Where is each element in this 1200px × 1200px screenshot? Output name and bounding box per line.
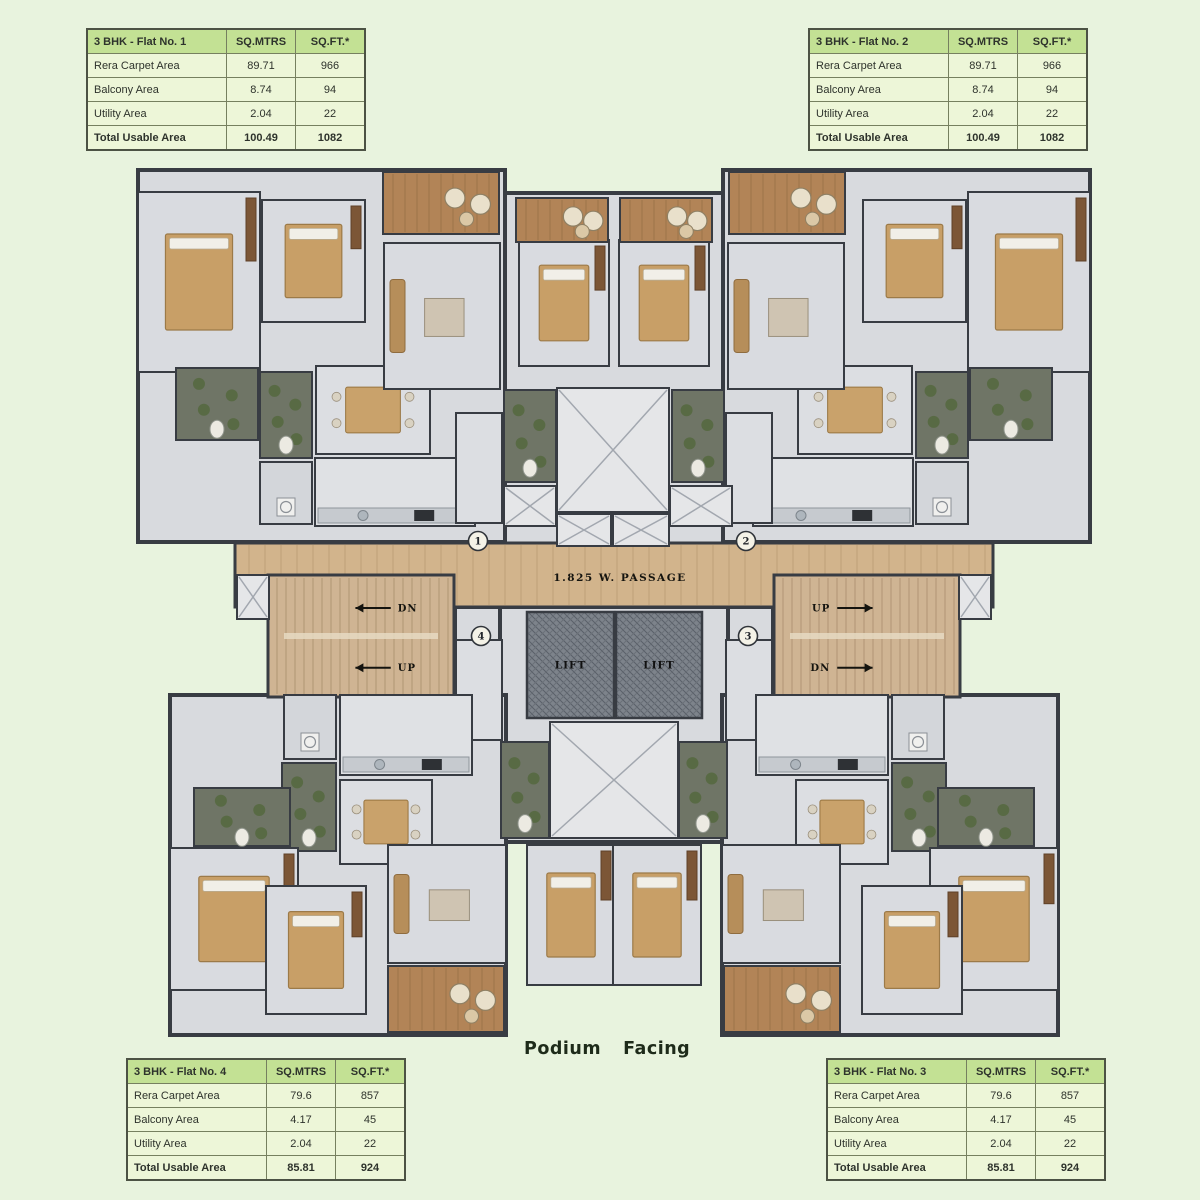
area-row-value: 857 xyxy=(1036,1084,1106,1108)
lift-2: LIFT xyxy=(616,612,702,718)
area-row-value: 89.71 xyxy=(949,54,1018,78)
area-row-label: Rera Carpet Area xyxy=(809,54,949,78)
room-duct-passage-end xyxy=(237,575,269,619)
area-col-header: SQ.FT.* xyxy=(336,1059,406,1084)
facing-word: Facing xyxy=(623,1039,690,1059)
area-row-value: 2.04 xyxy=(227,102,296,126)
plan-text: 4 xyxy=(478,632,485,643)
plan-text: LIFT xyxy=(643,660,675,672)
area-row-label: Total Usable Area xyxy=(827,1156,967,1181)
room-balcony-1b-right: BALCONY3.05 X 1.279'10" X 4'2" xyxy=(620,0,712,242)
stair-direction-label: UP xyxy=(812,603,830,614)
area-row: Utility Area2.0422 xyxy=(127,1132,405,1156)
plan-text: 1 xyxy=(475,537,482,548)
plan-text: 3 xyxy=(745,632,752,643)
area-total-row: Total Usable Area100.491082 xyxy=(809,126,1087,151)
area-row-label: Utility Area xyxy=(127,1132,267,1156)
area-table-title: 3 BHK - Flat No. 1 xyxy=(87,29,227,54)
core-marker-1: 1 xyxy=(469,532,488,551)
area-row-label: Balcony Area xyxy=(809,78,949,102)
area-row-value: 45 xyxy=(336,1108,406,1132)
area-col-header: SQ.FT.* xyxy=(1018,29,1088,54)
area-row: Rera Carpet Area89.71966 xyxy=(87,54,365,78)
staircase-right: UPDN xyxy=(774,575,960,697)
area-row-value: 45 xyxy=(1036,1108,1106,1132)
plan-text: 10'2" X 11'4" xyxy=(630,0,684,2)
area-row-value: 22 xyxy=(296,102,366,126)
area-col-header: SQ.FT.* xyxy=(1036,1059,1106,1084)
plan-text: LIFT xyxy=(555,660,587,672)
area-row-value: 79.6 xyxy=(267,1084,336,1108)
core-marker-2: 2 xyxy=(737,532,756,551)
room-m-bedroom-1b: M. BEDROOM3.10 X 3.9610'2" X 13'0" xyxy=(519,0,609,366)
area-row-value: 79.6 xyxy=(967,1084,1036,1108)
area-row-value: 22 xyxy=(336,1132,406,1156)
area-row-value: 924 xyxy=(336,1156,406,1181)
area-row-label: Rera Carpet Area xyxy=(827,1084,967,1108)
floor-plan-page: 1.825 W. PASSAGEDNUPUPDNM. BEDROOM3.55 X… xyxy=(0,0,1200,1200)
area-row-label: Utility Area xyxy=(809,102,949,126)
area-row: Rera Carpet Area79.6857 xyxy=(127,1084,405,1108)
area-row-value: 1082 xyxy=(1018,126,1088,151)
area-total-row: Total Usable Area85.81924 xyxy=(127,1156,405,1181)
area-row-label: Rera Carpet Area xyxy=(87,54,227,78)
room-duct-passage-end-right xyxy=(959,575,991,619)
area-row-value: 1082 xyxy=(296,126,366,151)
area-row: Balcony Area4.1745 xyxy=(127,1108,405,1132)
area-row-value: 22 xyxy=(1036,1132,1106,1156)
area-row-value: 100.49 xyxy=(949,126,1018,151)
area-row: Utility Area2.0422 xyxy=(827,1132,1105,1156)
area-table-title: 3 BHK - Flat No. 2 xyxy=(809,29,949,54)
plan-text: PASSAGE xyxy=(857,0,895,2)
floor-plan: 1.825 W. PASSAGEDNUPUPDNM. BEDROOM3.55 X… xyxy=(0,0,1200,1200)
core-marker-4: 4 xyxy=(472,627,491,646)
area-row-label: Utility Area xyxy=(87,102,227,126)
area-row-value: 22 xyxy=(1018,102,1088,126)
area-row: Balcony Area8.7494 xyxy=(809,78,1087,102)
area-col-header: SQ.MTRS xyxy=(949,29,1018,54)
area-row-label: Total Usable Area xyxy=(127,1156,267,1181)
room-passage-label-4-right: 3'0" WIDEPASSAGE xyxy=(852,0,901,2)
area-row-value: 966 xyxy=(1018,54,1088,78)
area-col-header: SQ.MTRS xyxy=(967,1059,1036,1084)
lift-1: LIFT xyxy=(527,612,614,718)
core-marker-3: 3 xyxy=(739,627,758,646)
stair-direction-label: DN xyxy=(398,603,418,614)
room-passage-label-4: 3'0" WIDEPASSAGE xyxy=(328,0,377,2)
area-row-value: 966 xyxy=(296,54,366,78)
area-col-header: SQ.MTRS xyxy=(267,1059,336,1084)
area-row-value: 85.81 xyxy=(967,1156,1036,1181)
area-row-label: Total Usable Area xyxy=(87,126,227,151)
staircase-left: DNUP xyxy=(268,575,454,697)
area-table-grid-flat-3: 3 BHK - Flat No. 3SQ.MTRSSQ.FT.*Rera Car… xyxy=(826,1058,1106,1181)
plan-text: 10'0" X 13'0" xyxy=(207,0,261,2)
passage-width-label: 1.825 W. PASSAGE xyxy=(553,572,686,584)
area-row-label: Total Usable Area xyxy=(809,126,949,151)
plan-text: 10'0" X 13'0" xyxy=(967,0,1021,2)
area-total-row: Total Usable Area85.81924 xyxy=(827,1156,1105,1181)
area-col-header: SQ.FT.* xyxy=(296,29,366,54)
area-row-value: 4.17 xyxy=(967,1108,1036,1132)
area-row-value: 89.71 xyxy=(227,54,296,78)
area-row-value: 4.17 xyxy=(267,1108,336,1132)
area-table-flat-2: 3 BHK - Flat No. 2SQ.MTRSSQ.FT.*Rera Car… xyxy=(808,28,1088,151)
area-row-label: Balcony Area xyxy=(87,78,227,102)
area-col-header: SQ.MTRS xyxy=(227,29,296,54)
area-row: Balcony Area8.7494 xyxy=(87,78,365,102)
area-table-grid-flat-4: 3 BHK - Flat No. 4SQ.MTRSSQ.FT.*Rera Car… xyxy=(126,1058,406,1181)
floor-plan-svg: 1.825 W. PASSAGEDNUPUPDNM. BEDROOM3.55 X… xyxy=(0,0,1200,1200)
area-total-row: Total Usable Area100.491082 xyxy=(87,126,365,151)
area-table-flat-4: 3 BHK - Flat No. 4SQ.MTRSSQ.FT.*Rera Car… xyxy=(126,1058,406,1181)
area-table-flat-3: 3 BHK - Flat No. 3SQ.MTRSSQ.FT.*Rera Car… xyxy=(826,1058,1106,1181)
room-m-bedroom-1b-right: M. BEDROOM3.10 X 3.9610'2" X 13'0" xyxy=(619,0,709,366)
stair-direction-label: UP xyxy=(398,663,416,674)
area-row-label: Balcony Area xyxy=(127,1108,267,1132)
plan-text: 2 xyxy=(743,537,750,548)
area-row: Balcony Area4.1745 xyxy=(827,1108,1105,1132)
area-row-value: 100.49 xyxy=(227,126,296,151)
area-row-value: 2.04 xyxy=(967,1132,1036,1156)
room-balcony-1: BALCONY3.29 X 1.1611'1" X 3'9" xyxy=(383,0,499,234)
plan-text: 10'2" X 4'0" xyxy=(422,0,471,2)
area-row: Rera Carpet Area89.71966 xyxy=(809,54,1087,78)
plan-text: 10'2" X 4'5" xyxy=(758,0,807,2)
area-row-value: 94 xyxy=(296,78,366,102)
plan-text: 10'2" X 11'4" xyxy=(544,0,598,2)
room-balcony-1b: BALCONY3.05 X 1.279'10" X 4'2" xyxy=(516,0,608,242)
area-row-value: 94 xyxy=(1018,78,1088,102)
area-row-label: Balcony Area xyxy=(827,1108,967,1132)
area-row-value: 924 xyxy=(1036,1156,1106,1181)
area-table-title: 3 BHK - Flat No. 4 xyxy=(127,1059,267,1084)
area-row-label: Rera Carpet Area xyxy=(127,1084,267,1108)
area-row-value: 2.04 xyxy=(267,1132,336,1156)
area-table-flat-1: 3 BHK - Flat No. 1SQ.MTRSSQ.FT.*Rera Car… xyxy=(86,28,366,151)
plan-text: PASSAGE xyxy=(333,0,371,2)
podium-word: Podium xyxy=(524,1039,601,1059)
area-row-value: 8.74 xyxy=(227,78,296,102)
area-table-grid-flat-1: 3 BHK - Flat No. 1SQ.MTRSSQ.FT.*Rera Car… xyxy=(86,28,366,151)
area-row-value: 2.04 xyxy=(949,102,1018,126)
area-table-title: 3 BHK - Flat No. 3 xyxy=(827,1059,967,1084)
stair-direction-label: DN xyxy=(810,663,830,674)
area-row-label: Utility Area xyxy=(827,1132,967,1156)
area-row: Utility Area2.0422 xyxy=(87,102,365,126)
area-row-value: 8.74 xyxy=(949,78,1018,102)
area-row-value: 857 xyxy=(336,1084,406,1108)
area-row: Utility Area2.0422 xyxy=(809,102,1087,126)
area-table-grid-flat-2: 3 BHK - Flat No. 2SQ.MTRSSQ.FT.*Rera Car… xyxy=(808,28,1088,151)
podium-facing-label: Podium Facing xyxy=(524,1039,690,1059)
area-row: Rera Carpet Area79.6857 xyxy=(827,1084,1105,1108)
area-row-value: 85.81 xyxy=(267,1156,336,1181)
